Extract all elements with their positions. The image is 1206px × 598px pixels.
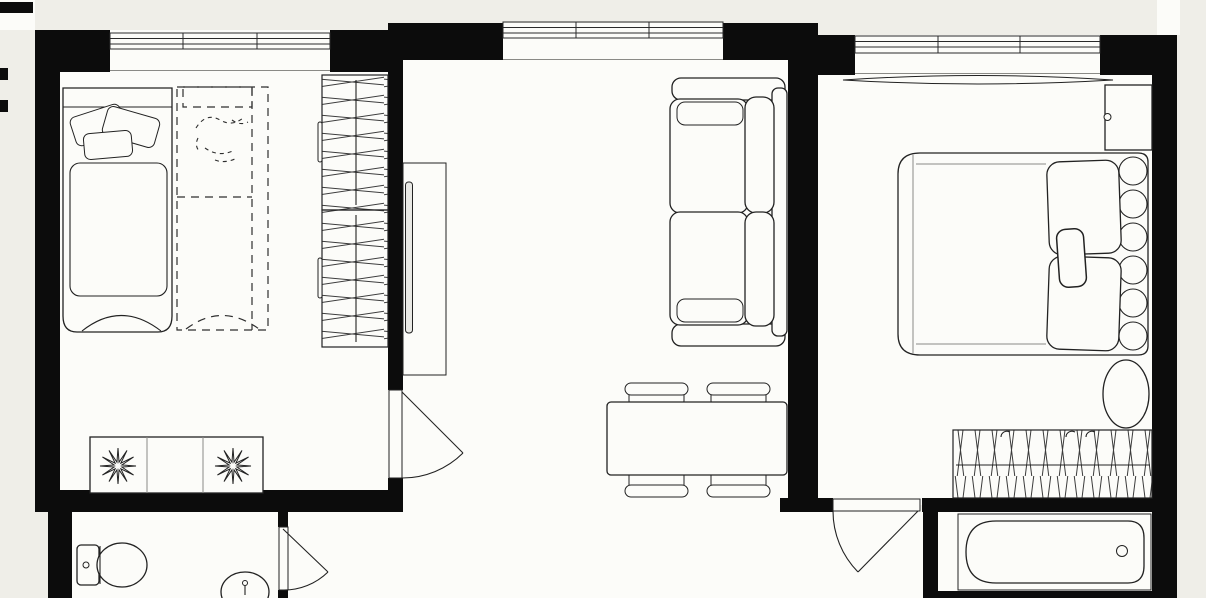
built-in-wardrobe bbox=[953, 430, 1152, 498]
chair-back bbox=[625, 383, 688, 395]
wall-living-bedroom-right bbox=[788, 23, 818, 512]
accent-pillow bbox=[1056, 228, 1087, 288]
wall-bathroom-left bbox=[923, 512, 938, 598]
window-bedroom-right bbox=[855, 35, 1100, 75]
wall-bedroom-living-upper bbox=[388, 30, 403, 390]
toilet bbox=[77, 543, 147, 587]
floor-plan bbox=[0, 0, 1206, 598]
chair-back bbox=[707, 383, 770, 395]
wardrobe-body bbox=[953, 430, 1152, 498]
dresser bbox=[90, 437, 263, 493]
faucet bbox=[243, 581, 248, 586]
wall-wc-left bbox=[48, 497, 72, 598]
floor-plan-canvas bbox=[0, 0, 1206, 598]
single-bed bbox=[63, 88, 172, 332]
oval-mirror bbox=[1103, 360, 1149, 428]
chair bbox=[707, 383, 770, 404]
door-leaf bbox=[279, 527, 288, 590]
window-opening bbox=[503, 23, 723, 60]
window-opening bbox=[110, 30, 330, 72]
wall-fragment-left-edge-2 bbox=[0, 100, 8, 112]
tv-screen bbox=[406, 182, 413, 333]
bedside-cabinet bbox=[1104, 85, 1152, 150]
sofa-pillow bbox=[677, 102, 743, 125]
flush-button bbox=[83, 562, 89, 568]
bathtub-drain bbox=[1117, 546, 1128, 557]
room-bathroom bbox=[958, 514, 1151, 590]
wardrobe-section-top bbox=[322, 75, 388, 210]
sofa-armrest-bottom bbox=[672, 324, 785, 346]
wall-fragment-top-left bbox=[0, 2, 33, 13]
dining-table bbox=[607, 402, 787, 475]
wall-bottom-bedroom-right bbox=[922, 498, 1177, 512]
wall-right-exterior bbox=[1152, 35, 1177, 598]
chair bbox=[625, 383, 688, 404]
cabinet-body bbox=[1105, 85, 1152, 150]
wardrobe-handle bbox=[318, 258, 322, 298]
sofa-pillow bbox=[677, 299, 743, 322]
cabinet-knob bbox=[1104, 114, 1111, 121]
door-leaf bbox=[833, 499, 920, 511]
exterior-white-strip bbox=[1157, 0, 1180, 35]
window-bedroom-left bbox=[110, 30, 330, 72]
double-bed bbox=[898, 153, 1148, 355]
wall-wc-right-upper bbox=[278, 512, 288, 527]
door-leaf bbox=[389, 390, 402, 478]
window-living-room bbox=[503, 22, 723, 60]
chair-back bbox=[625, 485, 688, 497]
wall-bathroom-bottom bbox=[938, 591, 1152, 598]
wardrobe-left-bedroom bbox=[318, 75, 388, 347]
sofa-back-cushion bbox=[745, 212, 774, 326]
wardrobe-handle bbox=[318, 122, 322, 162]
toilet-bowl bbox=[97, 543, 147, 587]
wardrobe-section-bottom bbox=[322, 210, 388, 347]
chair-back bbox=[707, 485, 770, 497]
sofa-back-cushion bbox=[745, 97, 774, 213]
floor-hallway bbox=[283, 510, 928, 598]
pillow bbox=[83, 130, 133, 160]
tv-console bbox=[403, 163, 446, 375]
sofa-armrest-top bbox=[672, 78, 785, 100]
wall-fragment-left-edge-1 bbox=[0, 68, 8, 80]
wall-left-exterior bbox=[35, 30, 60, 497]
wall-wc-right-lower bbox=[278, 590, 288, 598]
wall-stub-bedroom-right-door bbox=[780, 498, 833, 512]
